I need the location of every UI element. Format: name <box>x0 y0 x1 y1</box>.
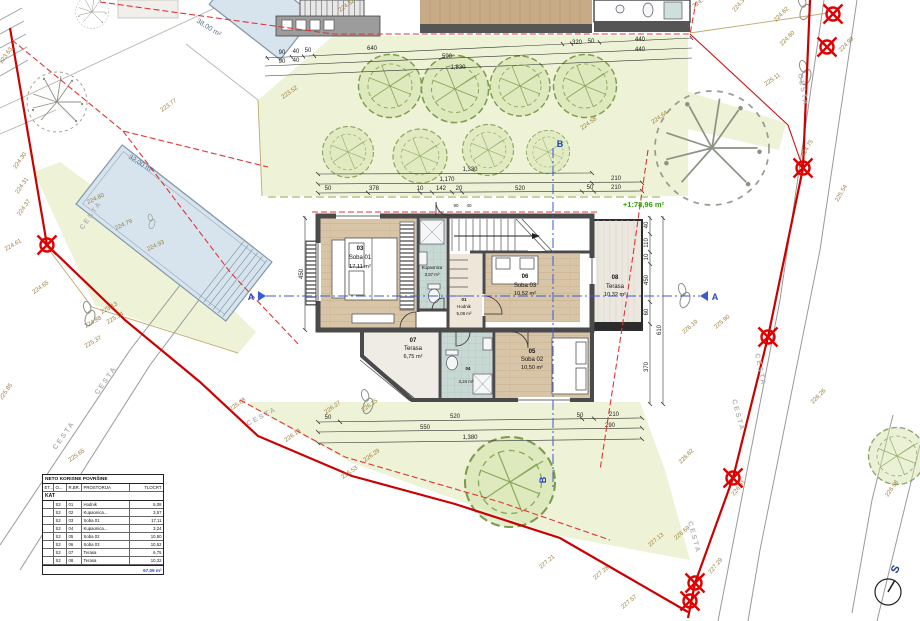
svg-text:225.68: 225.68 <box>229 397 248 413</box>
svg-text:223.63: 223.63 <box>0 46 15 65</box>
table-row: S203Soba 0117,11 <box>43 517 163 525</box>
svg-text:227.21: 227.21 <box>538 554 556 571</box>
section-b-label: B <box>557 139 564 149</box>
svg-text:CESTA: CESTA <box>730 399 745 433</box>
bed-soba02 <box>552 338 588 394</box>
svg-text:6,75 m²: 6,75 m² <box>404 354 423 360</box>
svg-text:04: 04 <box>466 366 471 371</box>
svg-text:110: 110 <box>644 238 650 248</box>
svg-text:440: 440 <box>635 37 646 43</box>
svg-text:40: 40 <box>293 49 300 55</box>
col-header: R.BR. <box>67 484 82 492</box>
table-row: S205Soba 0210,50 <box>43 533 163 541</box>
north-arrow: S <box>875 564 903 605</box>
survey-marker-icon <box>794 159 813 178</box>
svg-text:40: 40 <box>466 203 472 208</box>
svg-text:CESTA: CESTA <box>753 353 767 387</box>
col-header: TLOCRT <box>130 484 163 492</box>
svg-text:Terasa: Terasa <box>404 346 423 352</box>
svg-text:5,08 m²: 5,08 m² <box>457 311 472 316</box>
svg-text:224.30: 224.30 <box>13 151 29 170</box>
north-label: S <box>889 564 903 576</box>
svg-text:550: 550 <box>420 425 431 431</box>
tree-icon <box>359 55 422 118</box>
svg-text:227.28: 227.28 <box>592 565 610 582</box>
svg-text:226.19: 226.19 <box>681 319 699 336</box>
svg-text:225.85: 225.85 <box>0 382 15 401</box>
survey-marker-icon <box>686 574 705 593</box>
svg-text:05: 05 <box>529 349 536 355</box>
tree-icon <box>869 428 920 485</box>
svg-text:450: 450 <box>644 274 650 285</box>
svg-text:210: 210 <box>611 176 622 182</box>
svg-text:224.31: 224.31 <box>15 176 31 195</box>
building-floor-plan <box>306 202 642 403</box>
site-plan: 32,00 m² 38,00 m² <box>0 0 920 621</box>
svg-text:Terasa: Terasa <box>606 284 625 290</box>
survey-marker-icon <box>681 592 700 611</box>
area-table-title: NETO KORISNE POVRŠINE <box>43 475 163 484</box>
svg-text:224.99: 224.99 <box>838 36 856 54</box>
section-b-label: B <box>538 476 548 483</box>
svg-text:1,380: 1,380 <box>462 435 478 441</box>
svg-text:90: 90 <box>279 50 286 56</box>
svg-text:227.57: 227.57 <box>620 594 638 611</box>
svg-text:224.44: 224.44 <box>692 0 711 10</box>
area-table-header: ET... O... R.BR. PROSTORIJA TLOCRT <box>43 484 163 492</box>
svg-text:50: 50 <box>588 39 595 45</box>
svg-text:210: 210 <box>609 412 620 418</box>
survey-marker-icon <box>824 5 843 24</box>
tree-icon <box>526 130 569 173</box>
svg-text:1,170: 1,170 <box>439 177 455 183</box>
svg-text:40: 40 <box>293 58 300 64</box>
balcony-rail <box>306 241 316 305</box>
svg-text:224.62: 224.62 <box>773 6 791 24</box>
section-a-label: A <box>248 292 255 302</box>
bare-tree-icon <box>76 0 109 28</box>
floor-total-label: +1:78,96 m² <box>623 200 665 209</box>
svg-text:Hodnik: Hodnik <box>457 304 471 309</box>
svg-text:50: 50 <box>305 48 312 54</box>
survey-marker-icon <box>724 469 743 488</box>
table-section-label: KAT <box>43 492 163 501</box>
svg-text:60: 60 <box>644 308 650 315</box>
svg-text:225.11: 225.11 <box>764 72 783 88</box>
tree-icon <box>393 129 447 183</box>
area-table: NETO KORISNE POVRŠINE ET... O... R.BR. P… <box>42 474 164 575</box>
svg-text:227.29: 227.29 <box>708 557 725 575</box>
svg-text:224.37: 224.37 <box>17 198 33 217</box>
svg-text:10: 10 <box>417 186 424 192</box>
svg-text:03: 03 <box>357 246 364 252</box>
survey-marker-icon <box>38 236 57 255</box>
table-total-value: 67,09 m² <box>130 566 163 574</box>
survey-marker-icon <box>759 328 778 347</box>
svg-text:10,50 m²: 10,50 m² <box>521 365 543 371</box>
svg-text:08: 08 <box>612 275 619 281</box>
svg-text:1,330: 1,330 <box>462 167 478 173</box>
svg-text:224.60: 224.60 <box>779 30 797 48</box>
table-row: S207Terasa6,75 <box>43 549 163 557</box>
svg-text:17,11 m²: 17,11 m² <box>349 264 371 270</box>
svg-text:Soba 01: Soba 01 <box>349 255 372 261</box>
svg-text:378: 378 <box>369 186 380 192</box>
neighbor-buildings <box>118 0 690 36</box>
svg-text:01: 01 <box>462 297 467 302</box>
svg-text:224.65: 224.65 <box>32 280 51 296</box>
tree-icon <box>323 127 374 178</box>
table-row: S208Terasa10,32 <box>43 557 163 565</box>
svg-text:320: 320 <box>572 40 583 46</box>
svg-text:50: 50 <box>577 413 584 419</box>
svg-text:CESTA: CESTA <box>94 365 119 396</box>
section-a-label: A <box>712 292 719 302</box>
table-row: S202Kupaonica...3,57 <box>43 509 163 517</box>
svg-text:CESTA: CESTA <box>686 521 701 555</box>
bed-soba03 <box>492 256 538 284</box>
svg-text:3,57 m²: 3,57 m² <box>425 272 440 277</box>
svg-text:Kupaonica: Kupaonica <box>422 265 443 270</box>
svg-text:20: 20 <box>456 186 463 192</box>
svg-text:224.88: 224.88 <box>84 315 103 330</box>
svg-text:Soba 02: Soba 02 <box>521 357 544 363</box>
table-row: S201Hodnik5,08 <box>43 501 163 509</box>
svg-text:10,32 m²: 10,32 m² <box>604 292 626 298</box>
svg-text:226.62: 226.62 <box>678 448 696 466</box>
svg-text:90: 90 <box>279 59 286 65</box>
svg-text:210: 210 <box>611 185 622 191</box>
svg-text:224.61: 224.61 <box>4 238 23 253</box>
svg-text:06: 06 <box>522 274 529 280</box>
svg-text:90: 90 <box>453 203 459 208</box>
upper-pool-area-label: 38,00 m² <box>195 18 223 39</box>
svg-text:223.77: 223.77 <box>160 98 179 114</box>
svg-text:3,24 m²: 3,24 m² <box>459 379 474 384</box>
svg-text:40: 40 <box>644 221 650 228</box>
tree-icon <box>554 55 617 118</box>
col-header: O... <box>54 484 67 492</box>
svg-text:50: 50 <box>325 415 332 421</box>
svg-text:440: 440 <box>635 47 646 53</box>
svg-text:1,830: 1,830 <box>450 65 466 71</box>
svg-text:Soba 03: Soba 03 <box>514 283 537 289</box>
svg-text:225.37: 225.37 <box>84 335 103 350</box>
svg-text:450: 450 <box>299 268 305 279</box>
survey-marker-icon <box>818 38 837 57</box>
wardrobe-soba01 <box>400 222 414 310</box>
svg-text:610: 610 <box>657 324 663 335</box>
svg-text:590: 590 <box>442 54 453 60</box>
svg-text:10: 10 <box>644 253 650 260</box>
svg-text:225.65: 225.65 <box>68 448 87 464</box>
room-hodnik-floor <box>448 254 482 328</box>
svg-text:640: 640 <box>367 46 378 52</box>
svg-text:50: 50 <box>325 186 332 192</box>
svg-text:224.39: 224.39 <box>732 0 749 13</box>
svg-text:520: 520 <box>450 414 461 420</box>
svg-text:370: 370 <box>644 361 650 372</box>
col-header: PROSTORIJA <box>82 484 130 492</box>
col-header: ET... <box>43 484 54 492</box>
table-row: S204Kupaonica...3,24 <box>43 525 163 533</box>
svg-text:225.90: 225.90 <box>713 314 731 331</box>
svg-text:142: 142 <box>436 186 447 192</box>
table-total-row: 67,09 m² <box>43 565 163 574</box>
svg-text:50: 50 <box>587 185 594 191</box>
table-row: S206Soba 0310,52 <box>43 541 163 549</box>
svg-text:226.26: 226.26 <box>810 388 828 406</box>
svg-text:07: 07 <box>410 338 417 344</box>
svg-text:520: 520 <box>515 186 526 192</box>
svg-text:225.54: 225.54 <box>835 184 850 203</box>
